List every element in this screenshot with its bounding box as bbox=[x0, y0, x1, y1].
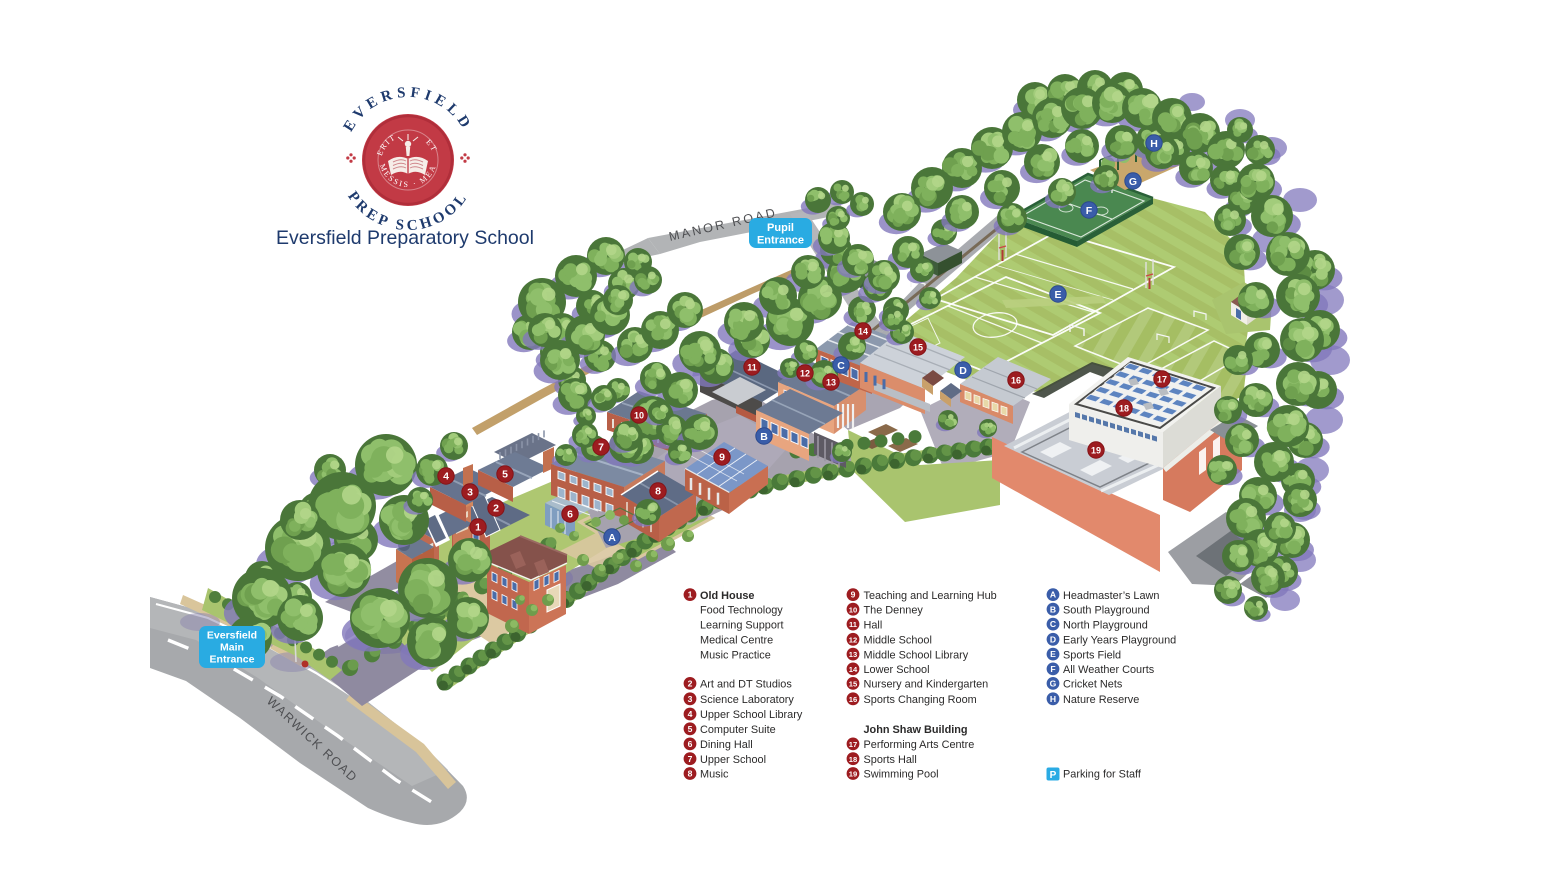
svg-text:14: 14 bbox=[858, 327, 868, 337]
svg-text:Nature Reserve: Nature Reserve bbox=[1063, 694, 1139, 706]
svg-text:E: E bbox=[1054, 289, 1061, 301]
svg-text:19: 19 bbox=[849, 770, 857, 779]
svg-text:B: B bbox=[760, 431, 768, 443]
svg-text:Sports Field: Sports Field bbox=[1063, 649, 1121, 661]
svg-text:Performing Arts Centre: Performing Arts Centre bbox=[864, 739, 975, 751]
svg-text:18: 18 bbox=[849, 755, 857, 764]
svg-text:F: F bbox=[1050, 664, 1055, 674]
svg-text:Computer Suite: Computer Suite bbox=[700, 724, 776, 736]
svg-text:Middle School Library: Middle School Library bbox=[864, 649, 969, 661]
svg-text:13: 13 bbox=[849, 650, 857, 659]
svg-text:B: B bbox=[1050, 604, 1056, 614]
svg-text:Cricket Nets: Cricket Nets bbox=[1063, 679, 1123, 691]
svg-text:3: 3 bbox=[467, 487, 473, 499]
svg-text:4: 4 bbox=[443, 471, 449, 483]
svg-text:12: 12 bbox=[800, 369, 810, 379]
svg-text:Sports Hall: Sports Hall bbox=[864, 754, 917, 766]
svg-text:Entrance: Entrance bbox=[210, 654, 255, 666]
svg-text:6: 6 bbox=[567, 509, 573, 521]
svg-text:Lower School: Lower School bbox=[864, 664, 930, 676]
svg-text:7: 7 bbox=[688, 754, 693, 764]
svg-text:Learning Support: Learning Support bbox=[700, 619, 784, 631]
svg-text:15: 15 bbox=[913, 343, 923, 353]
svg-text:The Denney: The Denney bbox=[864, 604, 924, 616]
svg-text:F: F bbox=[1086, 205, 1093, 217]
svg-text:Dining Hall: Dining Hall bbox=[700, 739, 753, 751]
svg-text:6: 6 bbox=[688, 739, 693, 749]
svg-text:C: C bbox=[1050, 619, 1056, 629]
svg-text:Sports Changing Room: Sports Changing Room bbox=[864, 694, 977, 706]
svg-text:18: 18 bbox=[1119, 404, 1129, 414]
svg-text:Entrance: Entrance bbox=[757, 235, 804, 247]
svg-text:C: C bbox=[837, 360, 845, 372]
svg-text:5: 5 bbox=[688, 724, 693, 734]
svg-text:7: 7 bbox=[598, 442, 604, 454]
svg-text:17: 17 bbox=[849, 740, 857, 749]
svg-text:Parking for Staff: Parking for Staff bbox=[1063, 769, 1142, 781]
svg-text:Music Practice: Music Practice bbox=[700, 649, 771, 661]
svg-text:H: H bbox=[1050, 694, 1056, 704]
svg-text:Science Laboratory: Science Laboratory bbox=[700, 694, 794, 706]
svg-text:P: P bbox=[1050, 770, 1057, 781]
svg-text:14: 14 bbox=[849, 665, 858, 674]
svg-text:16: 16 bbox=[849, 695, 857, 704]
svg-text:Teaching and Learning Hub: Teaching and Learning Hub bbox=[864, 590, 997, 602]
svg-text:Art and DT Studios: Art and DT Studios bbox=[700, 679, 792, 691]
svg-text:10: 10 bbox=[634, 411, 644, 421]
svg-text:H: H bbox=[1150, 138, 1158, 150]
svg-text:17: 17 bbox=[1157, 375, 1167, 385]
svg-text:12: 12 bbox=[849, 635, 857, 644]
svg-text:South Playground: South Playground bbox=[1063, 604, 1150, 616]
svg-text:19: 19 bbox=[1091, 446, 1101, 456]
svg-text:2: 2 bbox=[688, 679, 693, 689]
svg-text:Eversfield Preparatory School: Eversfield Preparatory School bbox=[276, 227, 534, 249]
svg-text:Eversfield: Eversfield bbox=[207, 630, 257, 642]
svg-text:Pupil: Pupil bbox=[767, 222, 794, 234]
svg-text:Music: Music bbox=[700, 769, 729, 781]
svg-text:Old House: Old House bbox=[700, 590, 754, 602]
svg-text:15: 15 bbox=[849, 680, 858, 689]
svg-text:Upper School Library: Upper School Library bbox=[700, 709, 803, 721]
svg-text:8: 8 bbox=[688, 769, 693, 779]
svg-text:10: 10 bbox=[849, 605, 857, 614]
svg-text:E: E bbox=[1050, 649, 1056, 659]
svg-text:G: G bbox=[1129, 176, 1137, 188]
svg-text:A: A bbox=[608, 532, 616, 544]
svg-text:1: 1 bbox=[475, 522, 481, 534]
svg-text:1: 1 bbox=[688, 590, 693, 600]
svg-text:9: 9 bbox=[851, 590, 856, 600]
svg-text:John Shaw Building: John Shaw Building bbox=[864, 724, 968, 736]
svg-text:8: 8 bbox=[655, 486, 661, 498]
svg-text:Middle School: Middle School bbox=[864, 635, 932, 647]
svg-text:Headmaster’s Lawn: Headmaster’s Lawn bbox=[1063, 590, 1159, 602]
svg-text:North Playground: North Playground bbox=[1063, 619, 1148, 631]
svg-text:Upper School: Upper School bbox=[700, 754, 766, 766]
svg-text:G: G bbox=[1050, 679, 1057, 689]
svg-text:3: 3 bbox=[688, 694, 693, 704]
svg-text:16: 16 bbox=[1011, 376, 1021, 386]
svg-text:Swimming Pool: Swimming Pool bbox=[864, 769, 939, 781]
svg-text:13: 13 bbox=[826, 378, 836, 388]
svg-text:5: 5 bbox=[502, 469, 508, 481]
svg-text:Hall: Hall bbox=[864, 619, 883, 631]
svg-text:A: A bbox=[1050, 590, 1056, 600]
svg-text:Early Years Playground: Early Years Playground bbox=[1063, 635, 1176, 647]
svg-text:All Weather Courts: All Weather Courts bbox=[1063, 664, 1155, 676]
svg-text:D: D bbox=[959, 365, 967, 377]
svg-text:9: 9 bbox=[719, 452, 725, 464]
svg-text:Nursery and Kindergarten: Nursery and Kindergarten bbox=[864, 679, 989, 691]
svg-text:4: 4 bbox=[688, 709, 693, 719]
svg-text:Medical Centre: Medical Centre bbox=[700, 635, 773, 647]
svg-text:Food Technology: Food Technology bbox=[700, 604, 783, 616]
svg-text:2: 2 bbox=[493, 503, 499, 515]
svg-text:11: 11 bbox=[849, 620, 858, 629]
svg-text:11: 11 bbox=[747, 363, 757, 373]
svg-text:Main: Main bbox=[220, 642, 244, 654]
svg-text:D: D bbox=[1050, 634, 1056, 644]
